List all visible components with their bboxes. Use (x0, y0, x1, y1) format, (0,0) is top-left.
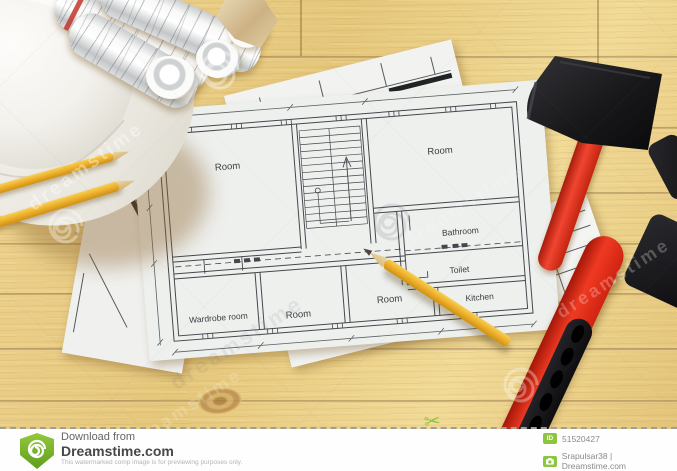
camera-icon (543, 456, 557, 467)
grip-hole (569, 323, 587, 345)
download-from-label: Download from (61, 431, 135, 443)
watermark-bar: Download from Dreamstime.com This waterm… (0, 429, 677, 471)
room-label: Toilet (449, 264, 470, 276)
room-label: Room (215, 161, 241, 174)
room-label: Bathroom (442, 225, 480, 238)
stock-photo-construction-plans: Room Room Bathroom Toilet Wardrobe room … (0, 0, 677, 471)
room-label: Room (376, 293, 402, 306)
grip-hole (558, 346, 576, 368)
axe-head (510, 42, 677, 157)
grip-hole (537, 391, 555, 413)
dreamstime-logo-icon (19, 432, 55, 470)
room-label: Kitchen (465, 291, 494, 303)
image-id: 51520427 (562, 434, 600, 444)
plank-gap (0, 400, 677, 403)
id-badge-icon: ID (543, 433, 557, 444)
room-label: Room (427, 145, 453, 158)
room-label: Room (285, 308, 311, 321)
grip-hole (548, 368, 566, 390)
image-id-row: ID 51520427 (543, 433, 600, 444)
site-name[interactable]: Dreamstime.com (61, 443, 174, 459)
room-label: Wardrobe room (189, 310, 248, 325)
disclaimer-text: This watermarked comp image is for previ… (61, 459, 242, 466)
author-credit[interactable]: Srapulsar38 | Dreamstime.com (562, 451, 677, 471)
plank-joint (300, 0, 302, 56)
credit-row: Srapulsar38 | Dreamstime.com (543, 451, 677, 471)
